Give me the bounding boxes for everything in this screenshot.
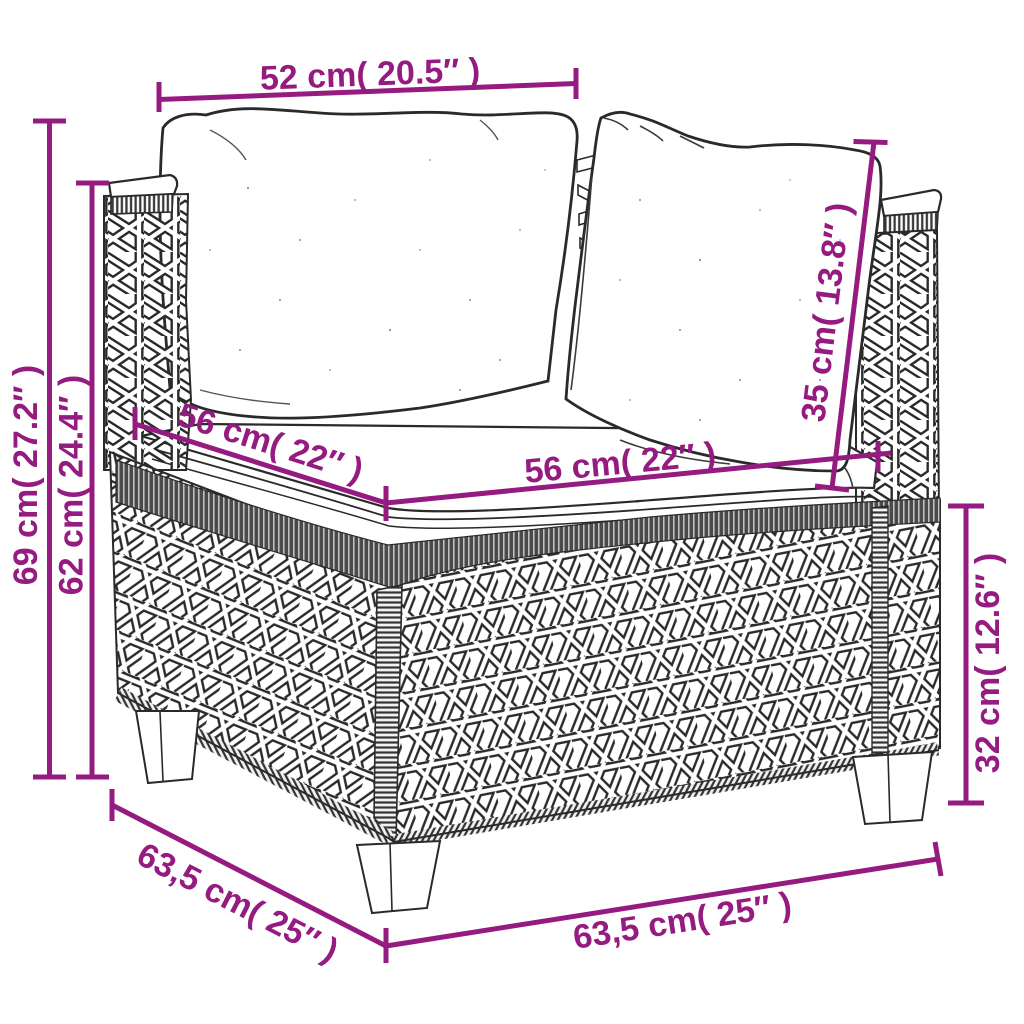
svg-text:32 cm( 12.6″ ): 32 cm( 12.6″ ) (969, 553, 1007, 773)
svg-text:62 cm( 24.4″ ): 62 cm( 24.4″ ) (53, 375, 91, 595)
svg-text:69 cm( 27.2″ ): 69 cm( 27.2″ ) (7, 365, 45, 585)
